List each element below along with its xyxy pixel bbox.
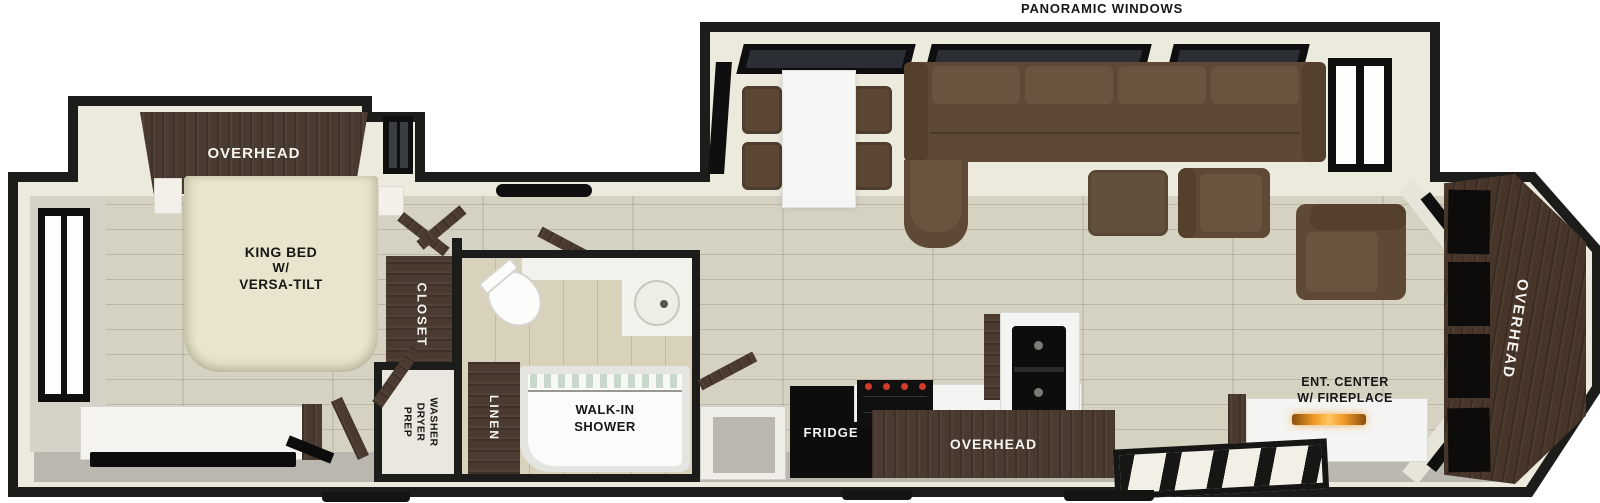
washer-dryer-prep-label: WASHER DRYER PREP xyxy=(400,390,439,454)
washer-dryer-prep-room: WASHER DRYER PREP xyxy=(374,362,466,482)
sofa-seat-seam xyxy=(930,132,1300,134)
sofa-back-cushion xyxy=(932,66,1020,104)
walk-in-shower: WALK-IN SHOWER xyxy=(520,366,690,472)
entry-landing-floor xyxy=(713,417,775,473)
stove-knob xyxy=(865,383,872,390)
bedroom-overhead-label: OVERHEAD xyxy=(207,145,300,162)
chair-back xyxy=(1178,168,1196,238)
rv-floorplan: OVERHEAD KING BED W/ VERSA-TILT CLOSET W… xyxy=(0,0,1600,503)
window-pane xyxy=(389,122,397,168)
faucet xyxy=(1034,388,1043,397)
bathroom: LINEN WALK-IN SHOWER xyxy=(454,250,700,482)
dining-chair xyxy=(742,142,782,190)
ottoman xyxy=(1088,170,1168,236)
dining-chair xyxy=(742,86,782,134)
panoramic-windows-label: PANORAMIC WINDOWS xyxy=(962,0,1242,16)
faucet xyxy=(1034,341,1043,350)
stove-grate xyxy=(863,396,927,397)
tv xyxy=(90,452,296,467)
dining-chair xyxy=(852,86,892,134)
rear-cabinet-cubby xyxy=(1448,262,1490,326)
dining-chair xyxy=(852,142,892,190)
sofa-back-cushion xyxy=(1118,66,1206,104)
window-pane xyxy=(1336,66,1356,164)
chaise-cushion xyxy=(910,160,962,232)
nightstand xyxy=(154,178,182,214)
fridge-label: FRIDGE xyxy=(803,425,858,440)
sink-drain xyxy=(660,300,668,308)
sofa-back-cushion xyxy=(1211,66,1299,104)
window-pane xyxy=(400,122,408,168)
exterior-step xyxy=(1064,490,1154,501)
accent-chair xyxy=(1178,168,1270,238)
stove-knob xyxy=(883,383,890,390)
sofa-armrest xyxy=(904,62,928,162)
recliner-back xyxy=(1310,204,1406,230)
entry-landing xyxy=(700,406,786,480)
fireplace xyxy=(1292,414,1366,425)
linen-cabinet: LINEN xyxy=(468,362,520,474)
kitchen-overhead-label: OVERHEAD xyxy=(950,436,1037,452)
king-bed-label-line3: VERSA-TILT xyxy=(239,277,323,292)
kitchen-overhead-cabinet: OVERHEAD xyxy=(872,410,1115,478)
shower-rod xyxy=(528,390,682,392)
stove-knob xyxy=(901,383,908,390)
window-pane xyxy=(1364,66,1384,164)
window-pane xyxy=(45,216,61,394)
shower-label-line1: WALK-IN xyxy=(575,402,634,419)
toilet-tank xyxy=(478,257,519,295)
hallway-window xyxy=(496,184,592,197)
nightstand xyxy=(378,186,404,216)
recliner-seat xyxy=(1306,232,1378,292)
king-bed-label-line1: KING BED xyxy=(245,244,317,260)
sofa-back-cushion xyxy=(1025,66,1113,104)
chair-seat xyxy=(1200,174,1262,232)
closet-cabinet: CLOSET xyxy=(386,256,458,374)
window-glass xyxy=(746,50,906,68)
rear-overhead-label: OVERHEAD xyxy=(1499,278,1532,380)
bathroom-sink xyxy=(634,280,680,326)
ent-center-side-cabinet xyxy=(1228,394,1246,446)
sofa-chaise xyxy=(904,160,968,248)
rear-cabinet-cubby xyxy=(1447,190,1490,255)
rear-cabinet-cubby xyxy=(1448,334,1490,398)
bedroom-slide-window xyxy=(383,116,413,174)
shower-label-line2: SHOWER xyxy=(574,419,636,436)
kitchen-slim-cabinet xyxy=(984,314,1000,400)
dining-table xyxy=(782,70,856,208)
sectional-sofa xyxy=(904,62,1326,162)
linen-label: LINEN xyxy=(487,373,501,463)
king-bed-label-line2: W/ xyxy=(273,260,290,277)
recliner xyxy=(1296,204,1406,300)
sink-divider xyxy=(1014,367,1064,372)
sofa-armrest xyxy=(1302,62,1326,162)
shower-curtain xyxy=(530,374,680,388)
kitchen-sink xyxy=(1012,326,1066,414)
bedroom-side-window xyxy=(38,208,90,402)
exterior-step xyxy=(322,492,410,502)
rear-cabinet-cubby xyxy=(1447,408,1490,473)
living-end-window xyxy=(1328,58,1392,172)
window-pane xyxy=(67,216,83,394)
king-bed: KING BED W/ VERSA-TILT xyxy=(184,176,378,372)
exterior-step xyxy=(842,490,912,500)
ent-center-label: ENT. CENTER W/ FIREPLACE xyxy=(1255,374,1435,407)
stove-knob xyxy=(919,383,926,390)
